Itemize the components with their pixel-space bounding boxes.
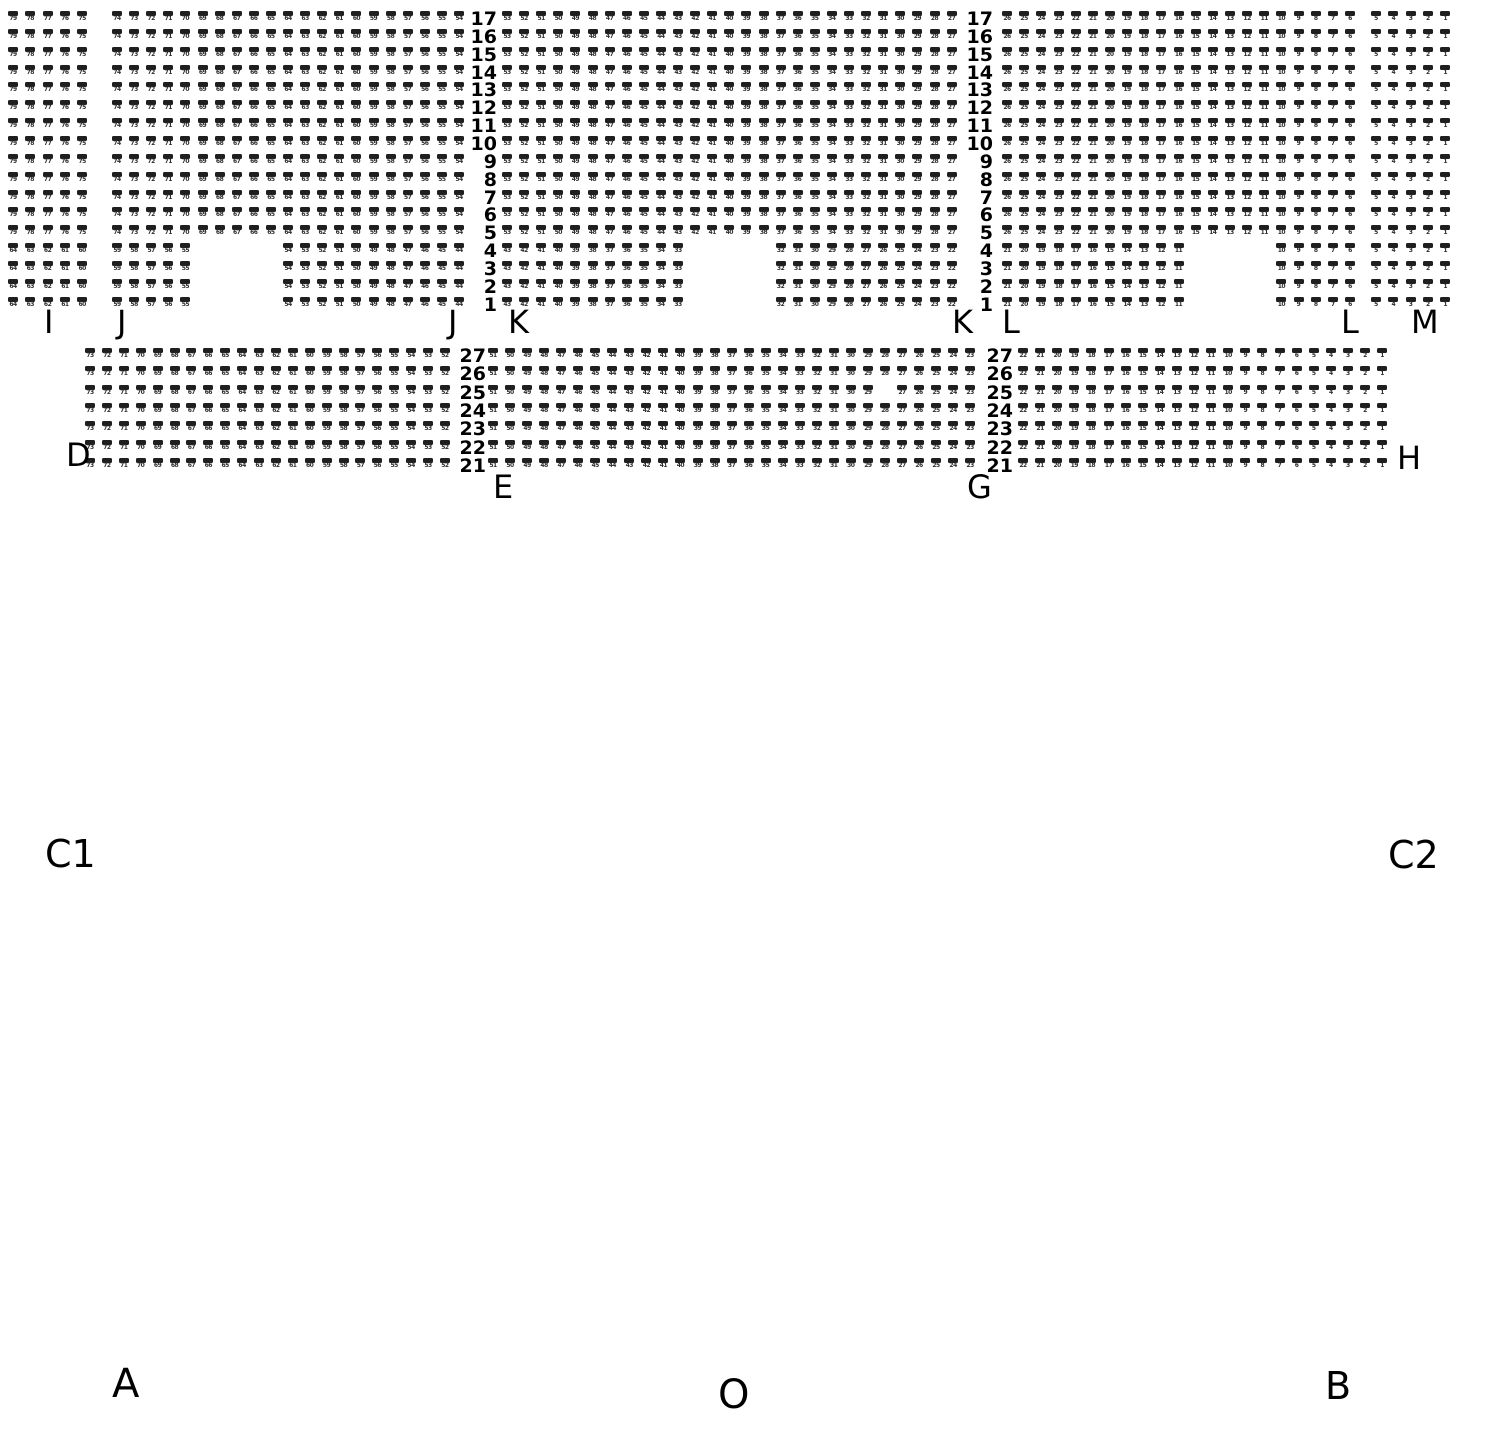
seat-J-r17-n67[interactable]: 67 <box>232 11 242 23</box>
seat-J-r14-n67[interactable]: 67 <box>232 65 242 77</box>
seat-H-r21-n2[interactable]: 2 <box>1360 458 1370 470</box>
seat-L-r6-n6[interactable]: 6 <box>1345 207 1355 219</box>
seat-H-r21-n6[interactable]: 6 <box>1292 458 1302 470</box>
seat-L-r6-n20[interactable]: 20 <box>1105 207 1115 219</box>
seat-L-r13-n8[interactable]: 8 <box>1311 82 1321 94</box>
seat-K-r3-n41[interactable]: 41 <box>536 261 546 273</box>
seat-J-r14-n64[interactable]: 64 <box>283 65 293 77</box>
seat-L-r4-n21[interactable]: 21 <box>1002 243 1012 255</box>
seat-L-r12-n16[interactable]: 16 <box>1174 100 1184 112</box>
seat-K-r13-n41[interactable]: 41 <box>707 82 717 94</box>
seat-H-r27-n1[interactable]: 1 <box>1377 348 1387 360</box>
seat-D-r22-n64[interactable]: 64 <box>237 440 247 452</box>
seat-H-r21-n5[interactable]: 5 <box>1309 458 1319 470</box>
seat-L-r4-n13[interactable]: 13 <box>1139 243 1149 255</box>
seat-L-r4-n10[interactable]: 10 <box>1276 243 1286 255</box>
seat-L-r13-n16[interactable]: 16 <box>1174 82 1184 94</box>
seat-K-r17-n36[interactable]: 36 <box>793 11 803 23</box>
seat-K-r14-n42[interactable]: 42 <box>690 65 700 77</box>
seat-L-r1-n9[interactable]: 9 <box>1294 297 1304 309</box>
seat-L-r4-n15[interactable]: 15 <box>1105 243 1115 255</box>
seat-I-r5-n78[interactable]: 78 <box>25 225 35 237</box>
seat-K-r8-n48[interactable]: 48 <box>588 172 598 184</box>
seat-K-r1-n29[interactable]: 29 <box>827 297 837 309</box>
seat-H-r27-n20[interactable]: 20 <box>1052 348 1062 360</box>
seat-J-r2-n45[interactable]: 45 <box>437 279 447 291</box>
seat-J-r15-n69[interactable]: 69 <box>198 47 208 59</box>
seat-H-r23-n15[interactable]: 15 <box>1138 421 1148 433</box>
seat-L-r6-n18[interactable]: 18 <box>1139 207 1149 219</box>
seat-M-r2-n3[interactable]: 3 <box>1406 279 1416 291</box>
seat-H-r24-n6[interactable]: 6 <box>1292 403 1302 415</box>
seat-I-r9-n79[interactable]: 79 <box>8 154 18 166</box>
seat-H-r25-n21[interactable]: 21 <box>1035 385 1045 397</box>
seat-L-r9-n7[interactable]: 7 <box>1328 154 1338 166</box>
seat-K-r17-n51[interactable]: 51 <box>536 11 546 23</box>
seat-M-r15-n4[interactable]: 4 <box>1388 47 1398 59</box>
seat-K-r9-n42[interactable]: 42 <box>690 154 700 166</box>
seat-J-r11-n74[interactable]: 74 <box>112 118 122 130</box>
seat-E-G-r26-n46[interactable]: 46 <box>573 366 583 378</box>
seat-L-r15-n14[interactable]: 14 <box>1208 47 1218 59</box>
seat-H-r25-n16[interactable]: 16 <box>1121 385 1131 397</box>
seat-L-r14-n14[interactable]: 14 <box>1208 65 1218 77</box>
seat-K-r6-n32[interactable]: 32 <box>861 207 871 219</box>
seat-L-r7-n24[interactable]: 24 <box>1036 190 1046 202</box>
seat-D-r22-n59[interactable]: 59 <box>322 440 332 452</box>
seat-H-r25-n12[interactable]: 12 <box>1189 385 1199 397</box>
seat-M-r4-n1[interactable]: 1 <box>1440 243 1450 255</box>
seat-J-r13-n57[interactable]: 57 <box>403 82 413 94</box>
seat-H-r23-n5[interactable]: 5 <box>1309 421 1319 433</box>
seat-E-G-r26-n50[interactable]: 50 <box>505 366 515 378</box>
seat-J-r7-n62[interactable]: 62 <box>317 190 327 202</box>
seat-J-r8-n64[interactable]: 64 <box>283 172 293 184</box>
seat-E-G-r23-n34[interactable]: 34 <box>778 421 788 433</box>
seat-L-r14-n18[interactable]: 18 <box>1139 65 1149 77</box>
seat-J-r1-n53[interactable]: 53 <box>300 297 310 309</box>
seat-D-r26-n73[interactable]: 73 <box>85 366 95 378</box>
seat-K-r17-n34[interactable]: 34 <box>827 11 837 23</box>
seat-K-r3-n31[interactable]: 31 <box>793 261 803 273</box>
seat-L-r1-n19[interactable]: 19 <box>1036 297 1046 309</box>
seat-D-r22-n72[interactable]: 72 <box>102 440 112 452</box>
seat-L-r14-n10[interactable]: 10 <box>1276 65 1286 77</box>
seat-J-r7-n63[interactable]: 63 <box>300 190 310 202</box>
seat-D-r23-n68[interactable]: 68 <box>170 421 180 433</box>
seat-K-r7-n38[interactable]: 38 <box>759 190 769 202</box>
seat-J-r1-n46[interactable]: 46 <box>420 297 430 309</box>
seat-J-r10-n74[interactable]: 74 <box>112 136 122 148</box>
seat-E-G-r25-n44[interactable]: 44 <box>607 385 617 397</box>
seat-K-r13-n50[interactable]: 50 <box>553 82 563 94</box>
seat-H-r27-n6[interactable]: 6 <box>1292 348 1302 360</box>
seat-E-G-r24-n39[interactable]: 39 <box>693 403 703 415</box>
seat-H-r26-n4[interactable]: 4 <box>1326 366 1336 378</box>
seat-J-r13-n74[interactable]: 74 <box>112 82 122 94</box>
seat-L-r16-n6[interactable]: 6 <box>1345 29 1355 41</box>
seat-D-r25-n67[interactable]: 67 <box>186 385 196 397</box>
seat-L-r10-n6[interactable]: 6 <box>1345 136 1355 148</box>
seat-M-r6-n2[interactable]: 2 <box>1423 207 1433 219</box>
seat-I-r1-n61[interactable]: 61 <box>60 297 70 309</box>
seat-J-r17-n69[interactable]: 69 <box>198 11 208 23</box>
seat-E-G-r27-n29[interactable]: 29 <box>863 348 873 360</box>
seat-E-G-r24-n25[interactable]: 25 <box>931 403 941 415</box>
seat-E-G-r25-n30[interactable]: 30 <box>846 385 856 397</box>
seat-J-r1-n57[interactable]: 57 <box>146 297 156 309</box>
seat-M-r4-n4[interactable]: 4 <box>1388 243 1398 255</box>
seat-J-r17-n65[interactable]: 65 <box>266 11 276 23</box>
seat-K-r10-n47[interactable]: 47 <box>605 136 615 148</box>
seat-H-r25-n2[interactable]: 2 <box>1360 385 1370 397</box>
seat-J-r17-n71[interactable]: 71 <box>163 11 173 23</box>
seat-L-r4-n9[interactable]: 9 <box>1294 243 1304 255</box>
seat-L-r11-n26[interactable]: 26 <box>1002 118 1012 130</box>
seat-J-r4-n59[interactable]: 59 <box>112 243 122 255</box>
seat-H-r21-n15[interactable]: 15 <box>1138 458 1148 470</box>
seat-I-r10-n78[interactable]: 78 <box>25 136 35 148</box>
seat-I-r3-n62[interactable]: 62 <box>43 261 53 273</box>
seat-J-r4-n54[interactable]: 54 <box>283 243 293 255</box>
seat-D-r27-n68[interactable]: 68 <box>170 348 180 360</box>
seat-K-r6-n39[interactable]: 39 <box>741 207 751 219</box>
seat-M-r5-n1[interactable]: 1 <box>1440 225 1450 237</box>
seat-J-r4-n52[interactable]: 52 <box>317 243 327 255</box>
seat-J-r15-n55[interactable]: 55 <box>437 47 447 59</box>
seat-K-r5-n31[interactable]: 31 <box>878 225 888 237</box>
seat-L-r10-n12[interactable]: 12 <box>1242 136 1252 148</box>
seat-K-r14-n43[interactable]: 43 <box>673 65 683 77</box>
seat-H-r23-n9[interactable]: 9 <box>1240 421 1250 433</box>
seat-L-r11-n14[interactable]: 14 <box>1208 118 1218 130</box>
seat-E-G-r23-n46[interactable]: 46 <box>573 421 583 433</box>
seat-H-r23-n14[interactable]: 14 <box>1155 421 1165 433</box>
seat-D-r21-n66[interactable]: 66 <box>203 458 213 470</box>
seat-K-r16-n32[interactable]: 32 <box>861 29 871 41</box>
seat-J-r10-n67[interactable]: 67 <box>232 136 242 148</box>
seat-K-r8-n40[interactable]: 40 <box>724 172 734 184</box>
seat-J-r1-n48[interactable]: 48 <box>386 297 396 309</box>
seat-K-r6-n44[interactable]: 44 <box>656 207 666 219</box>
seat-L-r9-n23[interactable]: 23 <box>1054 154 1064 166</box>
seat-E-G-r26-n40[interactable]: 40 <box>675 366 685 378</box>
seat-K-r12-n37[interactable]: 37 <box>776 100 786 112</box>
seat-E-G-r22-n51[interactable]: 51 <box>488 440 498 452</box>
seat-L-r15-n24[interactable]: 24 <box>1036 47 1046 59</box>
seat-I-r4-n60[interactable]: 60 <box>77 243 87 255</box>
seat-L-r2-n8[interactable]: 8 <box>1311 279 1321 291</box>
seat-M-r13-n2[interactable]: 2 <box>1423 82 1433 94</box>
seat-K-r12-n46[interactable]: 46 <box>622 100 632 112</box>
seat-J-r13-n59[interactable]: 59 <box>369 82 379 94</box>
seat-H-r21-n8[interactable]: 8 <box>1257 458 1267 470</box>
seat-J-r6-n66[interactable]: 66 <box>249 207 259 219</box>
seat-E-G-r24-n37[interactable]: 37 <box>727 403 737 415</box>
seat-K-r3-n25[interactable]: 25 <box>895 261 905 273</box>
seat-D-r25-n60[interactable]: 60 <box>305 385 315 397</box>
seat-E-G-r22-n26[interactable]: 26 <box>914 440 924 452</box>
seat-D-r24-n61[interactable]: 61 <box>288 403 298 415</box>
seat-J-r4-n45[interactable]: 45 <box>437 243 447 255</box>
seat-H-r27-n18[interactable]: 18 <box>1086 348 1096 360</box>
seat-L-r17-n12[interactable]: 12 <box>1242 11 1252 23</box>
seat-K-r17-n35[interactable]: 35 <box>810 11 820 23</box>
seat-H-r23-n17[interactable]: 17 <box>1104 421 1114 433</box>
seat-E-G-r22-n39[interactable]: 39 <box>693 440 703 452</box>
seat-L-r16-n18[interactable]: 18 <box>1139 29 1149 41</box>
seat-J-r2-n55[interactable]: 55 <box>180 279 190 291</box>
seat-J-r13-n73[interactable]: 73 <box>129 82 139 94</box>
seat-L-r10-n15[interactable]: 15 <box>1191 136 1201 148</box>
seat-K-r16-n37[interactable]: 37 <box>776 29 786 41</box>
seat-L-r17-n21[interactable]: 21 <box>1088 11 1098 23</box>
seat-E-G-r27-n43[interactable]: 43 <box>624 348 634 360</box>
seat-D-r27-n53[interactable]: 53 <box>423 348 433 360</box>
seat-L-r13-n10[interactable]: 10 <box>1276 82 1286 94</box>
seat-E-G-r23-n39[interactable]: 39 <box>693 421 703 433</box>
seat-J-r12-n71[interactable]: 71 <box>163 100 173 112</box>
seat-H-r21-n4[interactable]: 4 <box>1326 458 1336 470</box>
seat-J-r2-n57[interactable]: 57 <box>146 279 156 291</box>
seat-J-r5-n60[interactable]: 60 <box>351 225 361 237</box>
seat-I-r9-n75[interactable]: 75 <box>77 154 87 166</box>
seat-M-r5-n4[interactable]: 4 <box>1388 225 1398 237</box>
seat-D-r23-n60[interactable]: 60 <box>305 421 315 433</box>
seat-J-r3-n56[interactable]: 56 <box>163 261 173 273</box>
seat-E-G-r24-n49[interactable]: 49 <box>522 403 532 415</box>
seat-E-G-r22-n48[interactable]: 48 <box>539 440 549 452</box>
seat-L-r6-n17[interactable]: 17 <box>1156 207 1166 219</box>
seat-K-r13-n53[interactable]: 53 <box>502 82 512 94</box>
seat-E-G-r23-n43[interactable]: 43 <box>624 421 634 433</box>
seat-K-r7-n44[interactable]: 44 <box>656 190 666 202</box>
seat-K-r16-n30[interactable]: 30 <box>895 29 905 41</box>
seat-K-r10-n28[interactable]: 28 <box>930 136 940 148</box>
seat-M-r17-n1[interactable]: 1 <box>1440 11 1450 23</box>
seat-L-r3-n20[interactable]: 20 <box>1019 261 1029 273</box>
seat-J-r3-n58[interactable]: 58 <box>129 261 139 273</box>
seat-H-r27-n7[interactable]: 7 <box>1275 348 1285 360</box>
seat-L-r17-n14[interactable]: 14 <box>1208 11 1218 23</box>
seat-E-G-r27-n38[interactable]: 38 <box>710 348 720 360</box>
seat-E-G-r26-n47[interactable]: 47 <box>556 366 566 378</box>
seat-L-r11-n24[interactable]: 24 <box>1036 118 1046 130</box>
seat-H-r27-n17[interactable]: 17 <box>1104 348 1114 360</box>
seat-K-r6-n41[interactable]: 41 <box>707 207 717 219</box>
seat-L-r6-n16[interactable]: 16 <box>1174 207 1184 219</box>
seat-J-r13-n62[interactable]: 62 <box>317 82 327 94</box>
seat-K-r13-n40[interactable]: 40 <box>724 82 734 94</box>
seat-K-r14-n53[interactable]: 53 <box>502 65 512 77</box>
seat-K-r9-n36[interactable]: 36 <box>793 154 803 166</box>
seat-J-r12-n72[interactable]: 72 <box>146 100 156 112</box>
seat-D-r21-n54[interactable]: 54 <box>406 458 416 470</box>
seat-J-r2-n50[interactable]: 50 <box>351 279 361 291</box>
seat-E-G-r21-n49[interactable]: 49 <box>522 458 532 470</box>
seat-K-r2-n38[interactable]: 38 <box>588 279 598 291</box>
seat-E-G-r21-n24[interactable]: 24 <box>948 458 958 470</box>
seat-D-r23-n72[interactable]: 72 <box>102 421 112 433</box>
seat-J-r4-n48[interactable]: 48 <box>386 243 396 255</box>
seat-E-G-r25-n49[interactable]: 49 <box>522 385 532 397</box>
seat-L-r12-n19[interactable]: 19 <box>1122 100 1132 112</box>
seat-K-r16-n50[interactable]: 50 <box>553 29 563 41</box>
seat-L-r13-n22[interactable]: 22 <box>1071 82 1081 94</box>
seat-K-r4-n41[interactable]: 41 <box>536 243 546 255</box>
seat-K-r4-n24[interactable]: 24 <box>912 243 922 255</box>
seat-L-r11-n18[interactable]: 18 <box>1139 118 1149 130</box>
seat-L-r9-n12[interactable]: 12 <box>1242 154 1252 166</box>
seat-L-r5-n14[interactable]: 14 <box>1208 225 1218 237</box>
seat-E-G-r23-n50[interactable]: 50 <box>505 421 515 433</box>
seat-L-r17-n20[interactable]: 20 <box>1105 11 1115 23</box>
seat-I-r5-n75[interactable]: 75 <box>77 225 87 237</box>
seat-L-r3-n8[interactable]: 8 <box>1311 261 1321 273</box>
seat-K-r8-n28[interactable]: 28 <box>930 172 940 184</box>
seat-H-r22-n4[interactable]: 4 <box>1326 440 1336 452</box>
seat-H-r26-n20[interactable]: 20 <box>1052 366 1062 378</box>
seat-D-r23-n67[interactable]: 67 <box>186 421 196 433</box>
seat-H-r26-n3[interactable]: 3 <box>1343 366 1353 378</box>
seat-M-r7-n4[interactable]: 4 <box>1388 190 1398 202</box>
seat-J-r8-n71[interactable]: 71 <box>163 172 173 184</box>
seat-I-r2-n61[interactable]: 61 <box>60 279 70 291</box>
seat-J-r16-n61[interactable]: 61 <box>334 29 344 41</box>
seat-K-r17-n46[interactable]: 46 <box>622 11 632 23</box>
seat-D-r23-n66[interactable]: 66 <box>203 421 213 433</box>
seat-J-r7-n57[interactable]: 57 <box>403 190 413 202</box>
seat-K-r16-n29[interactable]: 29 <box>912 29 922 41</box>
seat-K-r8-n33[interactable]: 33 <box>844 172 854 184</box>
seat-J-r11-n59[interactable]: 59 <box>369 118 379 130</box>
seat-J-r11-n67[interactable]: 67 <box>232 118 242 130</box>
seat-I-r13-n79[interactable]: 79 <box>8 82 18 94</box>
seat-K-r17-n32[interactable]: 32 <box>861 11 871 23</box>
seat-H-r26-n6[interactable]: 6 <box>1292 366 1302 378</box>
seat-E-G-r21-n45[interactable]: 45 <box>590 458 600 470</box>
seat-L-r6-n22[interactable]: 22 <box>1071 207 1081 219</box>
seat-H-r22-n7[interactable]: 7 <box>1275 440 1285 452</box>
seat-J-r4-n50[interactable]: 50 <box>351 243 361 255</box>
seat-J-r14-n65[interactable]: 65 <box>266 65 276 77</box>
seat-D-r27-n55[interactable]: 55 <box>389 348 399 360</box>
seat-D-r22-n63[interactable]: 63 <box>254 440 264 452</box>
seat-K-r13-n39[interactable]: 39 <box>741 82 751 94</box>
seat-I-r3-n64[interactable]: 64 <box>8 261 18 273</box>
seat-E-G-r23-n38[interactable]: 38 <box>710 421 720 433</box>
seat-L-r12-n25[interactable]: 25 <box>1019 100 1029 112</box>
seat-L-r17-n9[interactable]: 9 <box>1294 11 1304 23</box>
seat-I-r5-n77[interactable]: 77 <box>43 225 53 237</box>
seat-J-r2-n46[interactable]: 46 <box>420 279 430 291</box>
seat-K-r12-n44[interactable]: 44 <box>656 100 666 112</box>
seat-H-r26-n16[interactable]: 16 <box>1121 366 1131 378</box>
seat-J-r16-n70[interactable]: 70 <box>180 29 190 41</box>
seat-H-r23-n18[interactable]: 18 <box>1086 421 1096 433</box>
seat-H-r23-n21[interactable]: 21 <box>1035 421 1045 433</box>
seat-D-r26-n53[interactable]: 53 <box>423 366 433 378</box>
seat-L-r13-n14[interactable]: 14 <box>1208 82 1218 94</box>
seat-J-r1-n52[interactable]: 52 <box>317 297 327 309</box>
seat-L-r16-n21[interactable]: 21 <box>1088 29 1098 41</box>
seat-D-r24-n55[interactable]: 55 <box>389 403 399 415</box>
seat-E-G-r25-n39[interactable]: 39 <box>693 385 703 397</box>
seat-J-r6-n61[interactable]: 61 <box>334 207 344 219</box>
seat-E-G-r25-n36[interactable]: 36 <box>744 385 754 397</box>
seat-J-r15-n72[interactable]: 72 <box>146 47 156 59</box>
seat-J-r6-n74[interactable]: 74 <box>112 207 122 219</box>
seat-K-r10-n51[interactable]: 51 <box>536 136 546 148</box>
seat-I-r16-n77[interactable]: 77 <box>43 29 53 41</box>
seat-J-r10-n65[interactable]: 65 <box>266 136 276 148</box>
seat-K-r5-n49[interactable]: 49 <box>570 225 580 237</box>
seat-L-r14-n13[interactable]: 13 <box>1225 65 1235 77</box>
seat-L-r1-n20[interactable]: 20 <box>1019 297 1029 309</box>
seat-E-G-r24-n34[interactable]: 34 <box>778 403 788 415</box>
seat-H-r25-n17[interactable]: 17 <box>1104 385 1114 397</box>
seat-I-r6-n78[interactable]: 78 <box>25 207 35 219</box>
seat-L-r10-n7[interactable]: 7 <box>1328 136 1338 148</box>
seat-J-r6-n63[interactable]: 63 <box>300 207 310 219</box>
seat-L-r3-n17[interactable]: 17 <box>1071 261 1081 273</box>
seat-D-r26-n70[interactable]: 70 <box>136 366 146 378</box>
seat-J-r17-n57[interactable]: 57 <box>403 11 413 23</box>
seat-K-r1-n31[interactable]: 31 <box>793 297 803 309</box>
seat-J-r13-n64[interactable]: 64 <box>283 82 293 94</box>
seat-L-r2-n13[interactable]: 13 <box>1139 279 1149 291</box>
seat-K-r14-n52[interactable]: 52 <box>519 65 529 77</box>
seat-L-r2-n19[interactable]: 19 <box>1036 279 1046 291</box>
seat-K-r3-n26[interactable]: 26 <box>878 261 888 273</box>
seat-L-r16-n13[interactable]: 13 <box>1225 29 1235 41</box>
seat-K-r4-n37[interactable]: 37 <box>605 243 615 255</box>
seat-J-r14-n60[interactable]: 60 <box>351 65 361 77</box>
seat-D-r24-n63[interactable]: 63 <box>254 403 264 415</box>
seat-J-r7-n55[interactable]: 55 <box>437 190 447 202</box>
seat-H-r22-n15[interactable]: 15 <box>1138 440 1148 452</box>
seat-J-r2-n53[interactable]: 53 <box>300 279 310 291</box>
seat-H-r27-n12[interactable]: 12 <box>1189 348 1199 360</box>
seat-L-r6-n9[interactable]: 9 <box>1294 207 1304 219</box>
seat-H-r22-n22[interactable]: 22 <box>1018 440 1028 452</box>
seat-K-r14-n40[interactable]: 40 <box>724 65 734 77</box>
seat-L-r7-n9[interactable]: 9 <box>1294 190 1304 202</box>
seat-J-r14-n68[interactable]: 68 <box>215 65 225 77</box>
seat-K-r14-n36[interactable]: 36 <box>793 65 803 77</box>
seat-E-G-r26-n42[interactable]: 42 <box>641 366 651 378</box>
seat-J-r2-n58[interactable]: 58 <box>129 279 139 291</box>
seat-J-r15-n59[interactable]: 59 <box>369 47 379 59</box>
seat-E-G-r24-n47[interactable]: 47 <box>556 403 566 415</box>
seat-M-r4-n5[interactable]: 5 <box>1371 243 1381 255</box>
seat-K-r15-n48[interactable]: 48 <box>588 47 598 59</box>
seat-L-r6-n14[interactable]: 14 <box>1208 207 1218 219</box>
seat-I-r2-n63[interactable]: 63 <box>25 279 35 291</box>
seat-K-r15-n36[interactable]: 36 <box>793 47 803 59</box>
seat-K-r14-n39[interactable]: 39 <box>741 65 751 77</box>
seat-H-r27-n11[interactable]: 11 <box>1206 348 1216 360</box>
seat-J-r8-n68[interactable]: 68 <box>215 172 225 184</box>
seat-K-r2-n30[interactable]: 30 <box>810 279 820 291</box>
seat-K-r17-n49[interactable]: 49 <box>570 11 580 23</box>
seat-M-r9-n2[interactable]: 2 <box>1423 154 1433 166</box>
seat-D-r25-n66[interactable]: 66 <box>203 385 213 397</box>
seat-J-r12-n64[interactable]: 64 <box>283 100 293 112</box>
seat-E-G-r27-n27[interactable]: 27 <box>897 348 907 360</box>
seat-K-r9-n46[interactable]: 46 <box>622 154 632 166</box>
seat-H-r25-n8[interactable]: 8 <box>1257 385 1267 397</box>
